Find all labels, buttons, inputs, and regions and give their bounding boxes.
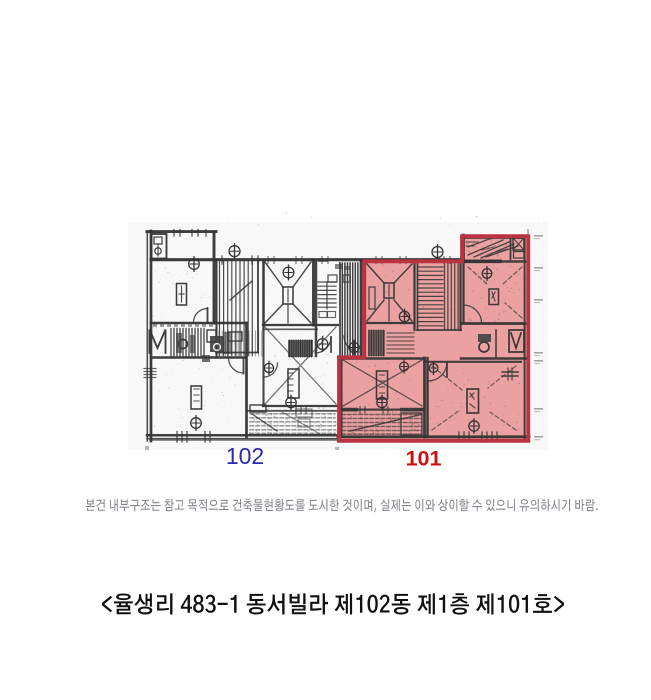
svg-text:101: 101 bbox=[406, 447, 442, 471]
svg-text:102: 102 bbox=[226, 443, 264, 469]
